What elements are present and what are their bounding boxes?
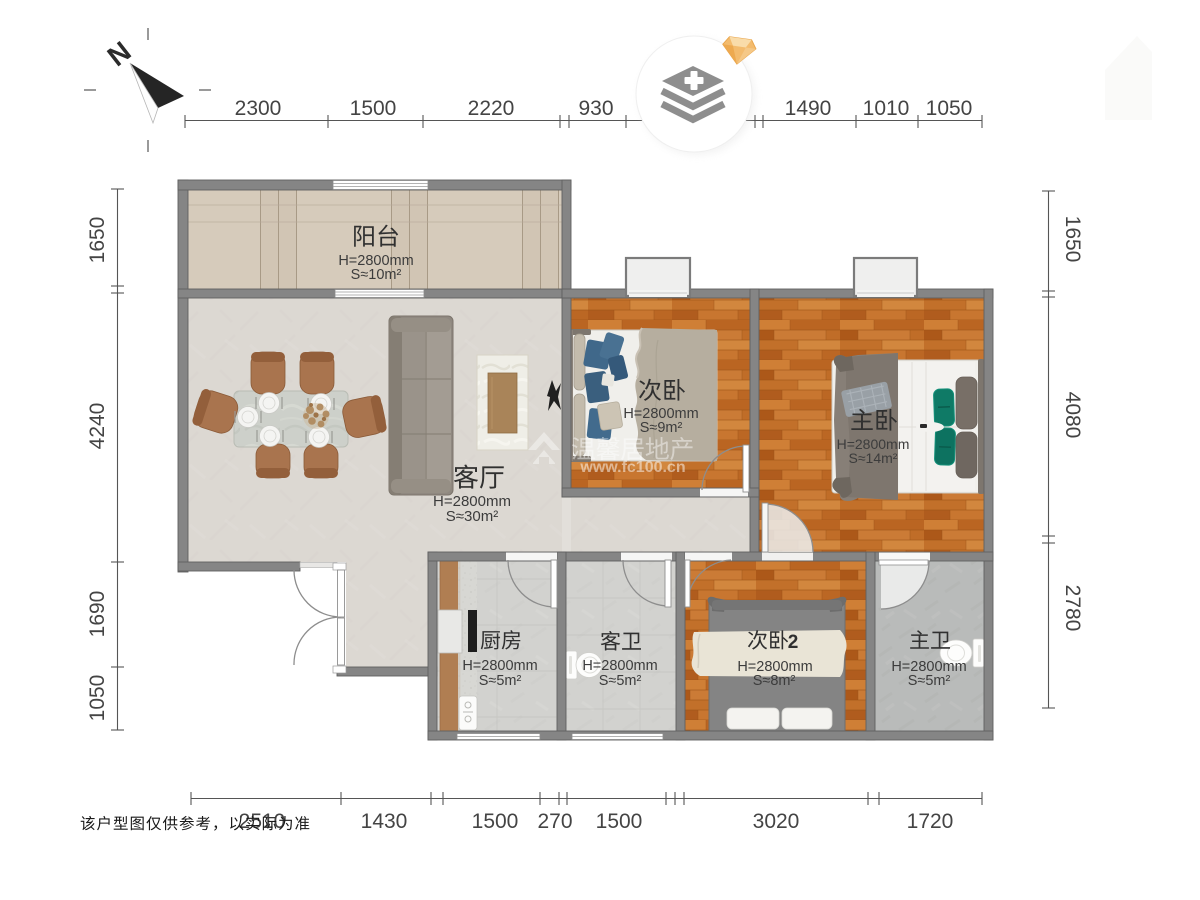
- svg-text:S≈9m²: S≈9m²: [640, 420, 683, 436]
- svg-text:1010: 1010: [863, 97, 910, 120]
- svg-text:1500: 1500: [472, 810, 519, 833]
- svg-text:2220: 2220: [468, 97, 515, 120]
- svg-text:S≈5m²: S≈5m²: [599, 673, 642, 689]
- svg-text:4240: 4240: [86, 403, 109, 450]
- svg-text:1650: 1650: [1061, 216, 1084, 263]
- svg-text:S≈10m²: S≈10m²: [351, 267, 402, 283]
- svg-text:930: 930: [578, 97, 613, 120]
- svg-text:2300: 2300: [235, 97, 282, 120]
- svg-text:S≈5m²: S≈5m²: [908, 673, 951, 689]
- svg-text:3020: 3020: [753, 810, 800, 833]
- svg-text:4080: 4080: [1061, 392, 1084, 439]
- svg-text:1720: 1720: [907, 810, 954, 833]
- svg-text:1430: 1430: [361, 810, 408, 833]
- svg-text:1490: 1490: [785, 97, 832, 120]
- svg-text:2780: 2780: [1061, 585, 1084, 632]
- svg-text:H=2800mm: H=2800mm: [462, 658, 537, 674]
- svg-text:1650: 1650: [86, 217, 109, 264]
- svg-text:270: 270: [537, 810, 572, 833]
- svg-text:S≈8m²: S≈8m²: [753, 673, 796, 689]
- svg-text:2: 2: [788, 632, 799, 653]
- svg-text:H=2800mm: H=2800mm: [582, 658, 657, 674]
- svg-text:S≈30m²: S≈30m²: [446, 508, 498, 525]
- svg-text:1050: 1050: [86, 675, 109, 722]
- svg-text:1690: 1690: [86, 591, 109, 638]
- svg-text:S≈5m²: S≈5m²: [479, 673, 522, 689]
- svg-text:1050: 1050: [926, 97, 973, 120]
- svg-text:1500: 1500: [596, 810, 643, 833]
- svg-text:2510: 2510: [239, 810, 286, 833]
- svg-text:S≈14m²: S≈14m²: [849, 450, 898, 466]
- svg-text:www.fc100.cn: www.fc100.cn: [579, 459, 685, 476]
- svg-text:1500: 1500: [350, 97, 397, 120]
